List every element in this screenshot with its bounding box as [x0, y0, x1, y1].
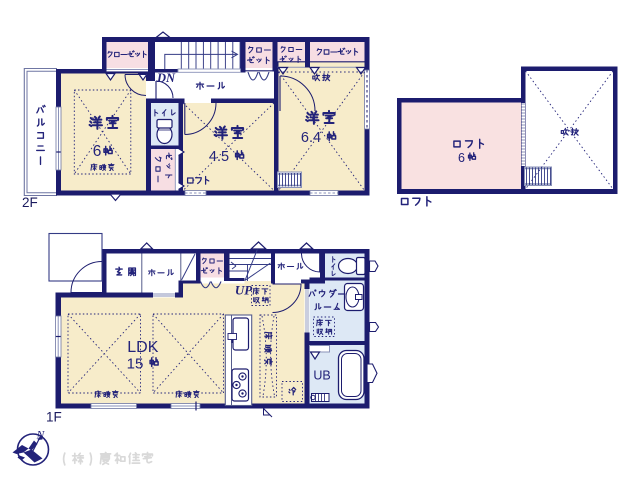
- svg-text:UP: UP: [235, 283, 253, 298]
- svg-text:LDK: LDK: [127, 339, 158, 356]
- svg-text:2F: 2F: [22, 195, 38, 210]
- svg-text:15: 15: [127, 356, 144, 373]
- svg-text:1F: 1F: [46, 410, 62, 425]
- svg-text:6: 6: [93, 143, 102, 160]
- svg-text:4.5: 4.5: [209, 149, 229, 165]
- svg-text:6.4: 6.4: [301, 130, 321, 146]
- svg-text:UB: UB: [313, 369, 330, 383]
- svg-text:6: 6: [458, 151, 465, 165]
- svg-text:DN: DN: [156, 71, 176, 85]
